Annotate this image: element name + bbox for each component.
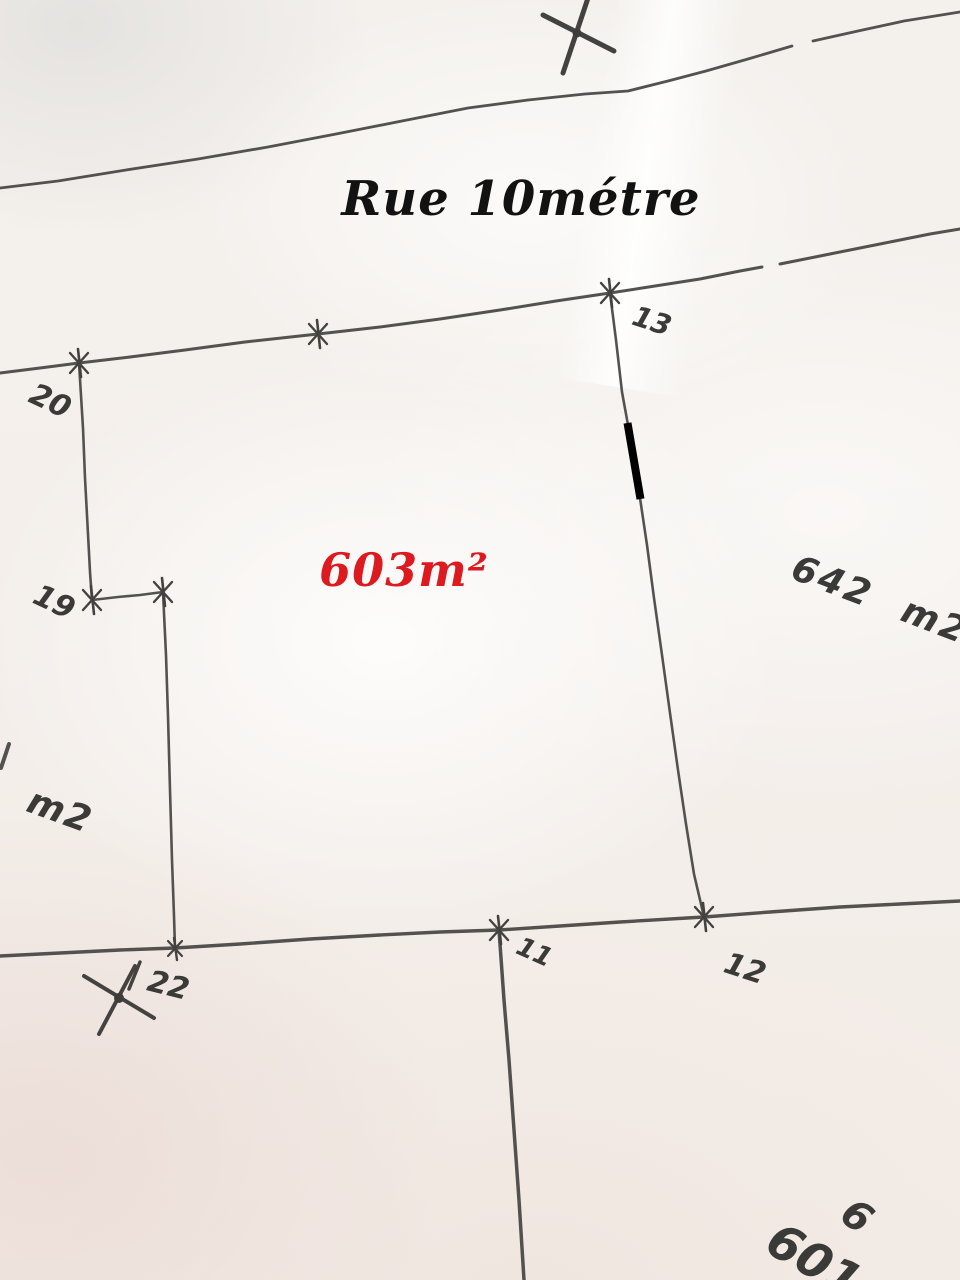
parcel-step-boundary-line: [92, 592, 163, 600]
lower-parcel-division-line: [499, 930, 524, 1280]
parcel-west-boundary-line: [79, 363, 92, 600]
right-parcel-area-label: 642 m2: [786, 548, 960, 653]
clipped-digit-stroke: [1, 744, 9, 768]
parcel-south-boundary-line: [0, 901, 960, 956]
left-parcel-area-label: m2: [22, 781, 99, 842]
point-label-19: 19: [28, 578, 81, 627]
point-label-12: 12: [720, 946, 771, 992]
street-lower-edge-line: [0, 229, 960, 373]
plan-drawing: Rue 10métre 603m² 642 m2 m2 20 19 13 11 …: [0, 0, 960, 1280]
reference-cross-icon-top: [543, 0, 614, 73]
street-upper-edge-line: [0, 12, 960, 188]
reference-cross-icon-p22: [84, 962, 154, 1034]
block-number-label: 6: [832, 1190, 882, 1244]
point-label-20: 20: [24, 377, 77, 426]
highlight-mark: [628, 423, 641, 499]
point-label-22: 22: [144, 964, 193, 1008]
parcel-southwest-boundary-line: [163, 592, 175, 948]
point-label-11: 11: [512, 932, 557, 974]
main-parcel-area-label: 603m²: [319, 543, 489, 597]
street-name-label: Rue 10métre: [339, 171, 700, 227]
point-label-13: 13: [628, 299, 675, 342]
parcel-east-boundary-line: [610, 293, 704, 917]
cadastral-plan-canvas: Rue 10métre 603m² 642 m2 m2 20 19 13 11 …: [0, 0, 960, 1280]
